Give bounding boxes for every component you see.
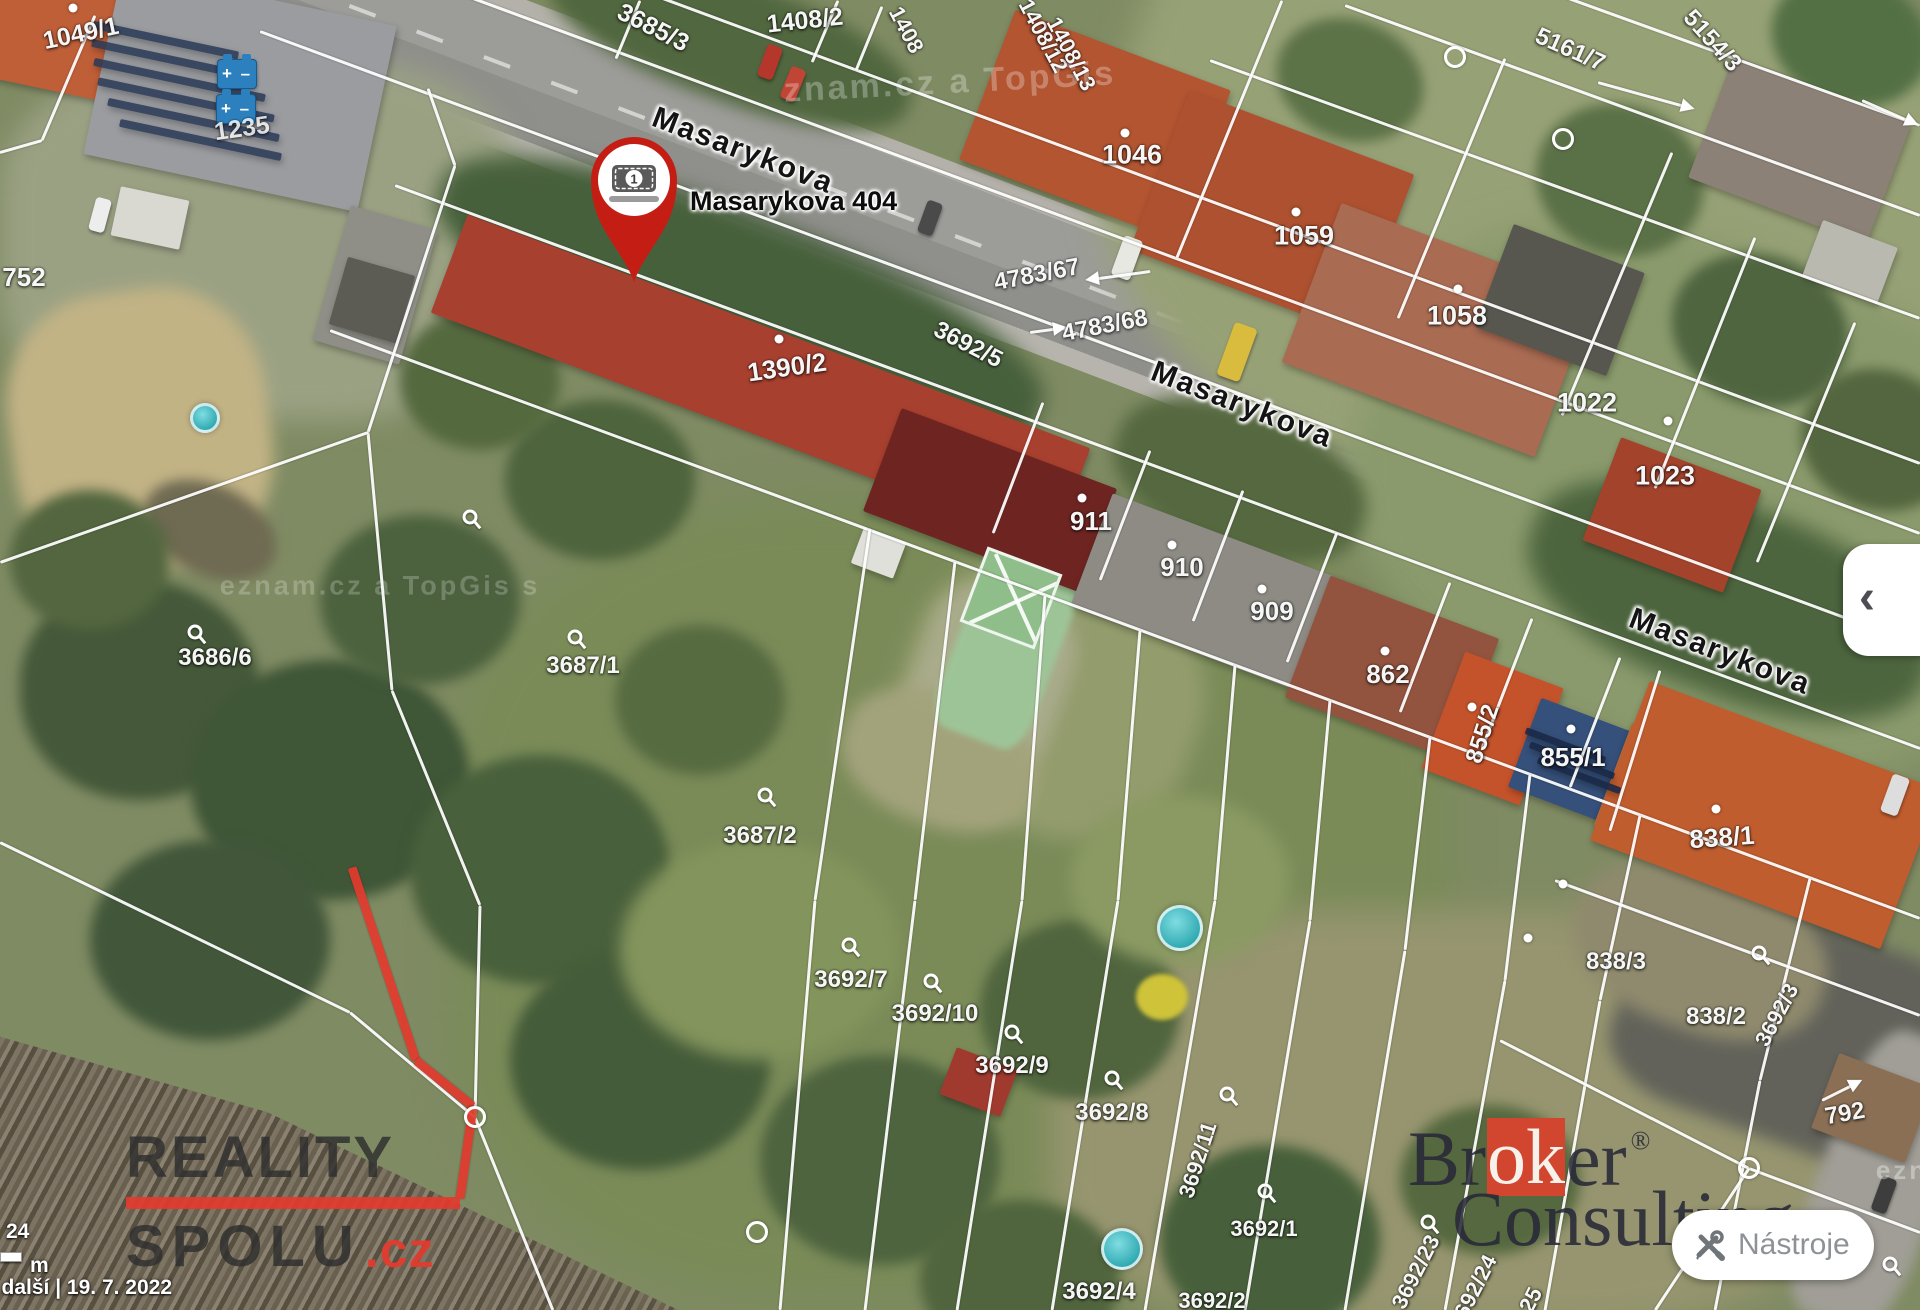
watermark-text: znam.cz a TopGis: [783, 56, 1117, 107]
map-canvas[interactable]: + –+ – 1049/112353685/31408/214081408/12…: [0, 0, 1920, 1310]
parcel-label: 3692/8: [1075, 1101, 1148, 1125]
parcel-label: 752: [2, 264, 45, 290]
cz-tld-text: .cz: [365, 1221, 435, 1279]
watermark-text: ezn: [1876, 1157, 1920, 1183]
watermark-text: eznam.cz a TopGis s: [220, 573, 541, 600]
street-label: Masarykova: [1625, 604, 1815, 701]
parcel-label: 25: [1516, 1284, 1547, 1310]
tools-icon: [1688, 1225, 1728, 1265]
parcel-label: 3692/5: [930, 318, 1006, 373]
map-application: + –+ – 1049/112353685/31408/214081408/12…: [0, 0, 1920, 1310]
parcel-label: 911: [1070, 508, 1112, 534]
parcel-label: 3687/1: [546, 654, 619, 678]
panel-collapse-tab[interactable]: ‹: [1843, 544, 1920, 656]
scale-unit: m: [30, 1254, 49, 1278]
parcel-label: 838/2: [1686, 1005, 1746, 1029]
street-label: Masarykova: [1147, 357, 1337, 454]
parcel-label: 3692/7: [814, 968, 887, 992]
marker-badge: 1: [630, 172, 637, 187]
spolu-text: SPOLU: [126, 1213, 361, 1280]
parcel-label: 910: [1160, 554, 1203, 580]
attribution: a další | 19. 7. 2022: [0, 1276, 172, 1300]
parcel-label: 1390/2: [746, 349, 828, 386]
reality-spolu-watermark: REALITY SPOLU .cz: [126, 1124, 460, 1280]
parcel-label: 855/2: [1462, 702, 1503, 767]
parcel-label: 5161/7: [1532, 24, 1609, 76]
parcel-label: 3686/6: [178, 646, 251, 670]
parcel-label: 3692/9: [975, 1054, 1048, 1078]
parcel-label: 862: [1366, 661, 1409, 687]
registered-mark: ®: [1631, 1129, 1651, 1154]
chevron-left-icon: ‹: [1859, 570, 1875, 625]
parcel-label: 1058: [1427, 303, 1487, 330]
parcel-label: 1023: [1635, 463, 1695, 490]
parcel-label: 3685/3: [613, 0, 692, 56]
parcel-label: 3692/1: [1230, 1218, 1297, 1240]
tools-button[interactable]: Nástroje: [1672, 1210, 1874, 1280]
parcel-label: 4783/67: [992, 255, 1082, 295]
tools-button-label: Nástroje: [1738, 1228, 1850, 1262]
map-labels: 1049/112353685/31408/214081408/121408/13…: [0, 0, 1920, 1310]
parcel-label: 3692/11: [1175, 1119, 1220, 1200]
parcel-label: 838/3: [1586, 950, 1646, 974]
parcel-label: 1408: [885, 3, 927, 57]
parcel-label: 4783/68: [1060, 306, 1150, 346]
parcel-label: 5154/3: [1679, 6, 1746, 77]
parcel-label: 855/1: [1540, 744, 1605, 770]
parcel-label: 3692/4: [1062, 1280, 1135, 1304]
parcel-label: 1049/1: [41, 14, 121, 54]
map-pin-marker[interactable]: 1: [589, 134, 679, 284]
parcel-label: 3687/2: [723, 824, 796, 848]
parcel-label: 838/1: [1689, 822, 1756, 852]
parcel-label: 1408/2: [766, 5, 845, 38]
parcel-label: 1046: [1102, 142, 1162, 169]
parcel-label: 3692/2: [1178, 1290, 1245, 1310]
reality-red-bar: [126, 1197, 460, 1209]
parcel-label: 792: [1823, 1099, 1867, 1130]
parcel-label: 909: [1250, 598, 1293, 624]
reality-text: REALITY: [126, 1124, 460, 1191]
parcel-label: 1059: [1274, 223, 1334, 250]
marker-label: Masarykova 404: [690, 186, 897, 217]
scale-bar: [0, 1252, 22, 1262]
parcel-label: 3692/3: [1751, 980, 1802, 1050]
scale-value: 24: [6, 1220, 29, 1244]
parcel-label: 1235: [213, 113, 272, 145]
parcel-label: 3692/10: [892, 1002, 979, 1026]
parcel-label: 1022: [1557, 390, 1617, 417]
